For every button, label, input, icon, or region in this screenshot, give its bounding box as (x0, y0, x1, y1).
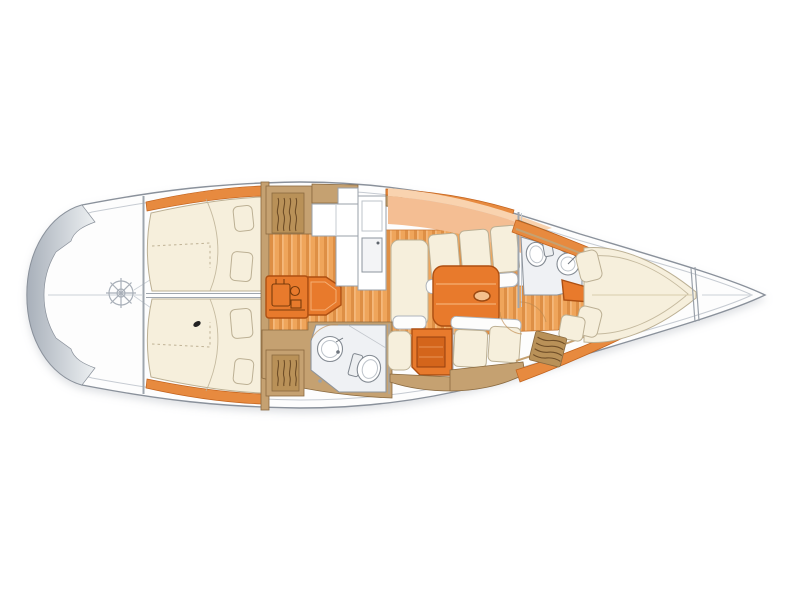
table-handle (474, 291, 490, 301)
sink-symbol (318, 337, 344, 362)
settee-front-edge (393, 316, 426, 329)
aft-head (262, 322, 392, 398)
engine-box (266, 276, 308, 318)
nav-seat (388, 331, 411, 370)
galley-tall-unit (358, 196, 386, 290)
door-handle (377, 242, 380, 245)
boat-deck-plan (0, 0, 800, 600)
settee-cushion (453, 329, 488, 368)
galley-shelf (338, 188, 358, 204)
settee-cushion (488, 326, 521, 363)
pillow (230, 308, 253, 339)
pillow (230, 251, 253, 282)
galley-counter (312, 204, 358, 236)
nav-station (388, 329, 452, 391)
settee-corner-cushion (391, 240, 428, 326)
galley-counter-ext (336, 236, 358, 286)
louvered-locker (272, 193, 304, 233)
aft-cabin-starboard (147, 299, 262, 393)
cockpit-bulkhead (143, 196, 145, 394)
chart-table-top (417, 337, 445, 367)
drain-dot (318, 379, 322, 383)
louvered-locker (266, 350, 304, 396)
sink-symbol (557, 253, 579, 275)
pillow (233, 205, 255, 232)
pillow (233, 358, 255, 385)
aft-cabin-port (147, 197, 262, 291)
